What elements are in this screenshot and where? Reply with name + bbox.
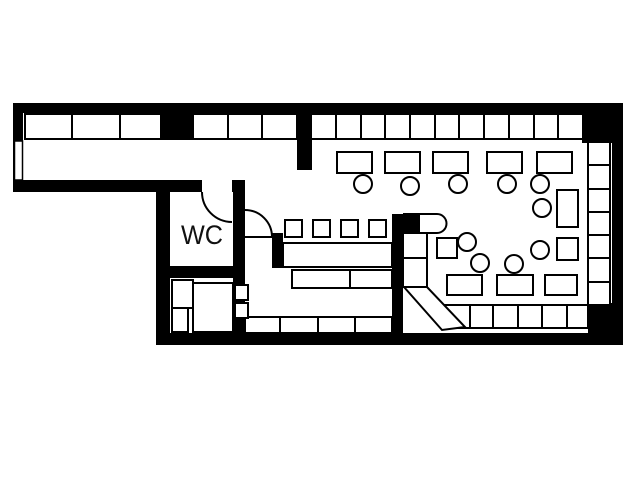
table: [545, 275, 577, 295]
bench-seat: [588, 235, 610, 258]
bar-counter: [283, 243, 392, 267]
chair: [354, 175, 372, 193]
wall-stub: [392, 214, 420, 233]
bench-seat: [470, 305, 493, 328]
bench-seat: [567, 305, 588, 328]
floorplan-drawing: WC: [0, 0, 640, 481]
wall: [392, 214, 403, 345]
stool: [313, 220, 330, 237]
wall: [13, 180, 202, 192]
stool: [341, 220, 358, 237]
chair: [533, 199, 551, 217]
bench-seat: [493, 305, 518, 328]
chair: [471, 254, 489, 272]
bench-seat: [588, 282, 610, 305]
stool: [285, 220, 302, 237]
wall: [232, 180, 245, 192]
bench-seat: [72, 114, 120, 139]
bench-seat: [484, 114, 509, 139]
bench-seat: [228, 114, 262, 139]
table: [337, 152, 372, 173]
wc-label: WC: [181, 220, 223, 250]
table: [557, 190, 578, 227]
table: [537, 152, 572, 173]
wall: [13, 103, 623, 113]
bench-seat: [588, 142, 610, 165]
bench-seat: [25, 114, 72, 139]
bench-seat: [355, 317, 392, 333]
bench-seat: [588, 189, 610, 212]
bench-seat: [318, 317, 355, 333]
stool: [437, 238, 457, 258]
window: [15, 141, 23, 180]
chair: [401, 177, 419, 195]
back-counter: [292, 270, 350, 288]
bench-seat: [542, 305, 567, 328]
table: [447, 275, 482, 295]
wall: [156, 333, 623, 345]
bench-seat: [518, 305, 542, 328]
bench-seat: [245, 317, 280, 333]
chair: [531, 175, 549, 193]
chair: [531, 241, 549, 259]
bench-seat: [280, 317, 318, 333]
wall: [272, 233, 283, 268]
chair: [449, 175, 467, 193]
bench-seat: [588, 165, 610, 189]
wall: [156, 266, 245, 278]
bench-seat: [193, 114, 228, 139]
bench-seat: [120, 114, 161, 139]
wc-door-opening: [202, 181, 232, 192]
bench-seat: [385, 114, 410, 139]
fixture: [235, 285, 248, 300]
wall: [588, 303, 623, 345]
bench-seat: [403, 233, 427, 258]
chair: [498, 175, 516, 193]
chair: [458, 233, 476, 251]
bench-seat: [435, 114, 459, 139]
bench-seat: [588, 258, 610, 282]
bench-seat: [410, 114, 435, 139]
bench-seat: [509, 114, 534, 139]
fixture: [172, 308, 188, 332]
fixture: [193, 283, 233, 332]
chair: [505, 255, 523, 273]
back-counter: [350, 270, 392, 288]
table: [487, 152, 522, 173]
bench-seat: [588, 212, 610, 235]
table: [497, 275, 533, 295]
fixture: [172, 280, 193, 308]
fixture: [235, 303, 248, 318]
bench-seat: [403, 258, 427, 287]
stool: [369, 220, 386, 237]
wall: [161, 113, 193, 140]
bench-seat: [459, 114, 484, 139]
floorplan-page: WC: [0, 0, 640, 481]
table: [433, 152, 468, 173]
table: [385, 152, 420, 173]
table: [557, 238, 578, 260]
bench-seat: [336, 114, 361, 139]
bench-seat: [558, 114, 583, 139]
wall: [582, 103, 623, 143]
bench-seat: [262, 114, 297, 139]
wall: [297, 103, 312, 170]
bench-seat: [534, 114, 558, 139]
bench-seat: [311, 114, 336, 139]
bench-seat: [361, 114, 385, 139]
